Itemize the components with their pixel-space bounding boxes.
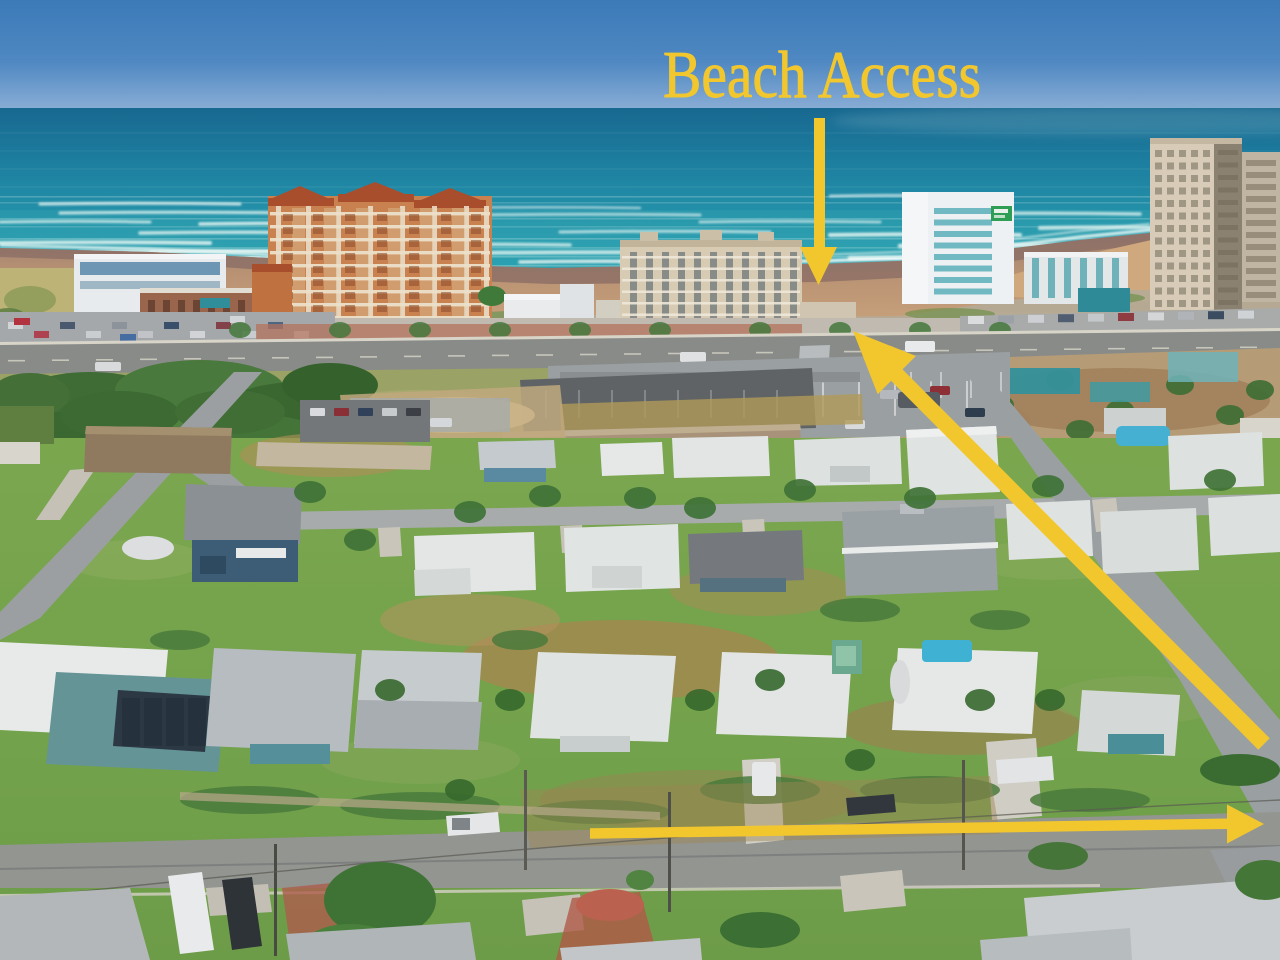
svg-text:Beach Access: Beach Access (663, 38, 981, 112)
